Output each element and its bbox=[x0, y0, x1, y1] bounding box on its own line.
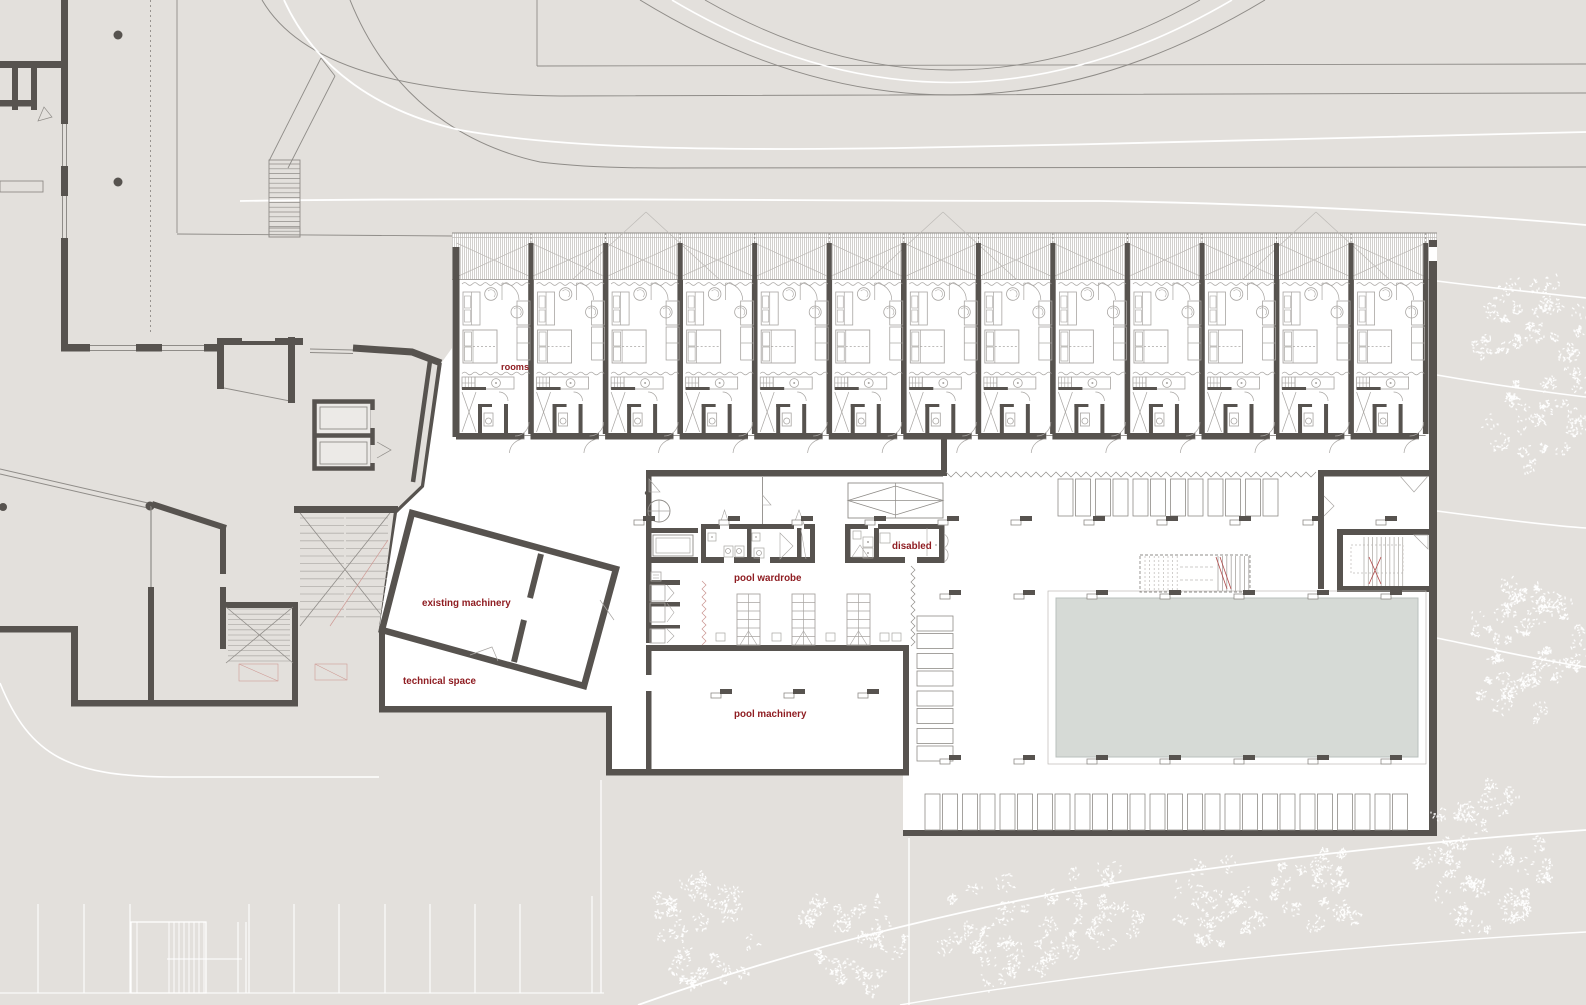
svg-text:rooms: rooms bbox=[501, 362, 529, 372]
svg-text:existing machinery: existing machinery bbox=[422, 598, 511, 609]
svg-text:technical space: technical space bbox=[403, 676, 477, 687]
svg-text:pool machinery: pool machinery bbox=[734, 709, 807, 720]
svg-text:pool wardrobe: pool wardrobe bbox=[734, 573, 802, 584]
svg-text:disabled: disabled bbox=[892, 541, 932, 552]
